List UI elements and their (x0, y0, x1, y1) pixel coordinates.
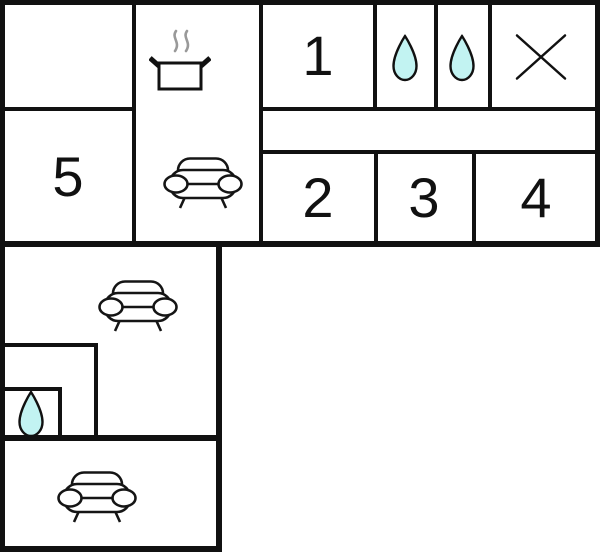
cross-icon (515, 34, 567, 81)
cooking-pot-icon (149, 27, 211, 91)
steam-line (175, 31, 177, 51)
wall-bath-cross-divider (488, 0, 492, 111)
wall-bath-bath-divider (434, 0, 438, 111)
water-drop-icon (447, 35, 477, 82)
wall-left-rooms-divider (0, 107, 136, 111)
wall-room3-room4-divider (472, 150, 476, 241)
room-label-3: 3 (408, 170, 439, 226)
wall-left-column-right (132, 0, 136, 241)
room-label-2: 2 (302, 170, 333, 226)
wall-nested-room-top (0, 343, 98, 347)
water-drop-icon (16, 391, 46, 438)
wall-nested-room-right (94, 343, 98, 439)
wall-outer-left (0, 0, 5, 552)
sofa-icon (163, 157, 243, 209)
wall-bottom-section-bottom (0, 546, 222, 552)
wall-corridor-bottom (259, 150, 600, 154)
wall-bottom-section-right (216, 241, 222, 552)
pot-body (159, 63, 201, 89)
wall-top-section-bottom (0, 241, 600, 247)
steam-line (186, 31, 188, 51)
sofa-icon (57, 471, 137, 523)
floor-plan: 1 2 3 4 5 (0, 0, 600, 552)
wall-room1-bath-divider (373, 0, 377, 111)
wall-room2-room3-divider (374, 150, 378, 241)
room-label-1: 1 (302, 28, 333, 84)
room-label-4: 4 (520, 170, 551, 226)
wall-kitchen-column-right (259, 0, 263, 241)
water-drop-icon (390, 35, 420, 82)
room-label-5: 5 (52, 149, 83, 205)
wall-outer-right-top-section (595, 0, 600, 247)
wall-outer-top (0, 0, 600, 5)
sofa-icon (98, 280, 178, 332)
wall-top-rooms-bottom (259, 107, 600, 111)
wall-bath-nested-right (58, 387, 62, 439)
